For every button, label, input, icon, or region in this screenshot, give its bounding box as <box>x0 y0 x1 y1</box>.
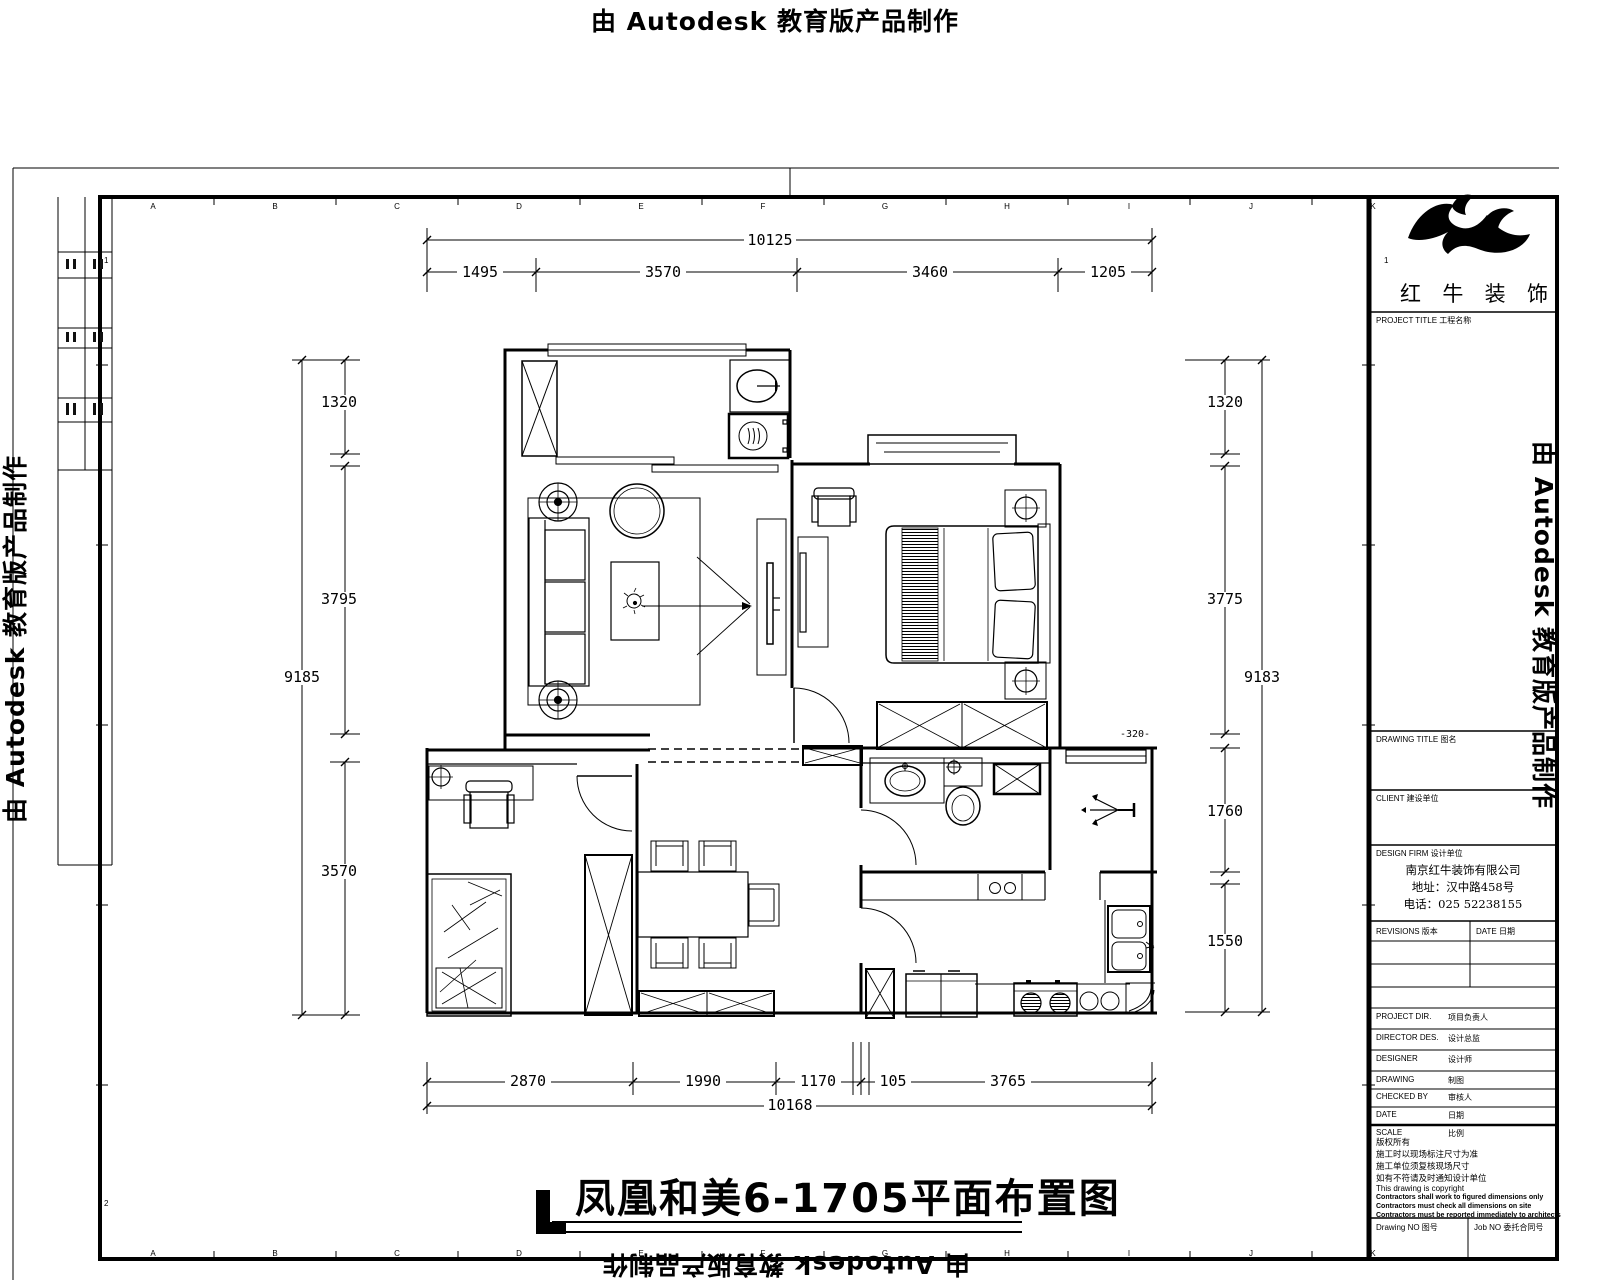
left-reference-strip <box>58 197 112 865</box>
row-project-dir-cn: 项目负责人 <box>1448 1012 1488 1023</box>
svg-text:I: I <box>1128 202 1130 211</box>
svg-text:3765: 3765 <box>990 1072 1026 1090</box>
nightstand-bottom <box>1005 662 1046 699</box>
note-cn-3: 施工单位须复核现场尺寸 <box>1376 1160 1470 1172</box>
svg-text:A: A <box>150 202 156 211</box>
drawing-no-label: Drawing NO 图号 <box>1376 1222 1438 1233</box>
svg-text:H: H <box>1004 1249 1010 1258</box>
revisions-label: REVISIONS 版本 <box>1376 926 1438 937</box>
wash-basin <box>870 758 944 803</box>
row-date-en: DATE <box>1376 1110 1397 1119</box>
row-date-cn: 日期 <box>1448 1110 1464 1121</box>
note-cn-2: 施工时以现场标注尺寸为准 <box>1376 1148 1478 1160</box>
bedroom-chair <box>812 488 856 526</box>
svg-text:F: F <box>761 202 766 211</box>
svg-text:A: A <box>150 1249 156 1258</box>
double-bed <box>886 524 1050 663</box>
balcony <box>522 360 790 458</box>
svg-text:2: 2 <box>104 1199 109 1208</box>
entry-hall <box>1081 794 1134 826</box>
svg-text:105: 105 <box>879 1072 906 1090</box>
svg-text:3795: 3795 <box>321 590 357 608</box>
coffee-table <box>611 562 659 640</box>
desk <box>429 765 533 800</box>
walls <box>427 350 1157 1013</box>
level-mark: -320- <box>1120 729 1150 740</box>
row-drawing-cn: 制图 <box>1448 1075 1464 1086</box>
svg-text:3570: 3570 <box>645 263 681 281</box>
design-firm-label: DESIGN FIRM 设计单位 <box>1376 848 1463 859</box>
svg-text:1990: 1990 <box>685 1072 721 1090</box>
row-checked-en: CHECKED BY <box>1376 1092 1428 1101</box>
watermark-left: 由 Autodesk 教育版产品制作 <box>0 463 32 823</box>
balcony-cabinet <box>522 361 557 456</box>
svg-text:1495: 1495 <box>462 263 498 281</box>
balcony-basin <box>730 360 790 412</box>
living-room <box>528 483 786 719</box>
row-designer-cn: 设计师 <box>1448 1054 1472 1065</box>
svg-text:3570: 3570 <box>321 862 357 880</box>
svg-text:K: K <box>1370 202 1376 211</box>
svg-text:2870: 2870 <box>510 1072 546 1090</box>
row-checked-cn: 审核人 <box>1448 1092 1472 1103</box>
svg-text:E: E <box>638 202 643 211</box>
watermark-top: 由 Autodesk 教育版产品制作 <box>591 2 959 38</box>
nightstand-top <box>1005 490 1046 527</box>
tv-unit <box>757 519 786 675</box>
washing-machine <box>729 414 788 458</box>
company-logo <box>1408 194 1530 254</box>
svg-text:1320: 1320 <box>1207 393 1243 411</box>
firm-address: 地址：汉中路458号 <box>1373 879 1553 895</box>
firm-phone: 电话：025 52238155 <box>1373 896 1553 912</box>
job-no-label: Job NO 委托合同号 <box>1474 1222 1543 1233</box>
svg-text:J: J <box>1249 1249 1253 1258</box>
svg-text:J: J <box>1249 202 1253 211</box>
plan-title: 凤凰和美6-1705平面布置图 <box>575 1166 1121 1224</box>
svg-text:I: I <box>1128 1249 1130 1258</box>
svg-text:B: B <box>272 1249 277 1258</box>
svg-text:C: C <box>394 202 400 211</box>
svg-text:1320: 1320 <box>321 393 357 411</box>
note-en-bold-3: Contractors must be reported immediately… <box>1376 1212 1561 1219</box>
round-table <box>610 484 664 538</box>
dining-chairs <box>651 841 779 968</box>
svg-text:B: B <box>272 202 277 211</box>
bedroom-dresser <box>798 537 828 647</box>
wall-inner-lines <box>427 763 1100 900</box>
svg-text:D: D <box>516 1249 522 1258</box>
firm-name: 南京红牛装饰有限公司 <box>1373 862 1553 878</box>
dimensions: 10125 1495 3570 3460 1205 2870 1990 1170… <box>279 228 1285 1114</box>
master-bedroom <box>798 488 1050 749</box>
drawing-frame: A B C D E F G H I J K A B C D E F G H I … <box>96 197 1557 1259</box>
svg-text:G: G <box>882 202 888 211</box>
drawing-title-label: DRAWING TITLE 图名 <box>1376 734 1456 745</box>
svg-text:K: K <box>1370 1249 1376 1258</box>
toilet <box>944 758 982 825</box>
row-scale-cn: 比例 <box>1448 1128 1464 1139</box>
windows <box>548 344 1146 763</box>
dim-top-overall: 10125 <box>747 231 792 249</box>
wardrobe-master <box>877 702 1047 749</box>
cad-sheet: { "watermarks": { "top": "由 Autodesk 教育版… <box>0 0 1600 1280</box>
cad-canvas: A B C D E F G H I J K A B C D E F G H I … <box>0 0 1600 1280</box>
fridge <box>906 971 977 1017</box>
note-en-bold-2: Contractors must check all dimensions on… <box>1376 1203 1531 1210</box>
svg-text:1760: 1760 <box>1207 802 1243 820</box>
shower-symbol <box>1081 794 1134 826</box>
rug <box>528 498 700 705</box>
note-en-bold-1: Contractors shall work to figured dimens… <box>1376 1194 1543 1201</box>
svg-text:3460: 3460 <box>912 263 948 281</box>
speaker-bottom <box>539 681 577 719</box>
row-director-en: DIRECTOR DES. <box>1376 1033 1439 1042</box>
speaker-top <box>539 483 577 521</box>
cooktop <box>1014 980 1077 1016</box>
row-project-dir-en: PROJECT DIR. <box>1376 1012 1431 1021</box>
row-designer-en: DESIGNER <box>1376 1054 1418 1063</box>
row-director-cn: 设计总监 <box>1448 1033 1480 1044</box>
grid-letters-top: A B C D E F G H I J K <box>150 202 1376 211</box>
dim-bottom-overall: 10168 <box>767 1096 812 1114</box>
svg-text:C: C <box>394 1249 400 1258</box>
project-title-label: PROJECT TITLE 工程名称 <box>1376 315 1471 326</box>
note-en-thin: This drawing is copyright <box>1376 1184 1464 1193</box>
dining-area <box>638 841 779 1016</box>
door-master-bedroom <box>794 688 849 743</box>
tall-cabinet <box>866 969 894 1018</box>
svg-text:1550: 1550 <box>1207 932 1243 950</box>
note-cn-1: 版权所有 <box>1376 1136 1410 1148</box>
dim-right <box>1185 356 1270 1016</box>
grid-row-numbers: 1 1 2 <box>104 256 1389 1208</box>
svg-text:1170: 1170 <box>800 1072 836 1090</box>
company-name: 红牛装饰 <box>1400 278 1548 308</box>
door-second-bedroom <box>577 776 632 831</box>
plan-title-underline-2 <box>552 1231 1022 1233</box>
dim-left <box>292 356 360 1019</box>
single-bed <box>427 874 511 1016</box>
second-bedroom <box>427 765 632 1016</box>
dim-right-overall: 9183 <box>1244 668 1280 686</box>
dim-left-overall: 9185 <box>284 668 320 686</box>
vent-box <box>994 764 1040 794</box>
watermark-bottom: 由 Autodesk 教育版产品制作 <box>610 1248 970 1284</box>
bay-window <box>868 435 1016 464</box>
double-sink <box>1108 906 1154 972</box>
client-label: CLIENT 建设单位 <box>1376 793 1439 804</box>
floor-plan <box>427 344 1157 1018</box>
dining-table <box>638 872 748 937</box>
svg-text:1: 1 <box>1384 256 1389 265</box>
svg-text:D: D <box>516 202 522 211</box>
bathroom <box>870 758 1040 825</box>
desk-chair <box>464 781 514 828</box>
row-drawing-en: DRAWING <box>1376 1075 1414 1084</box>
date-col-label: DATE 日期 <box>1476 926 1515 937</box>
doors <box>577 688 916 963</box>
sofa <box>529 518 589 686</box>
dashed-beam <box>648 749 803 762</box>
door-kitchen <box>861 908 916 963</box>
note-cn-4: 如有不符请及时通知设计单位 <box>1376 1172 1487 1184</box>
svg-text:H: H <box>1004 202 1010 211</box>
wardrobe-second <box>585 855 632 1015</box>
kitchen <box>861 874 1155 1018</box>
door-bathroom <box>861 810 916 865</box>
svg-text:3775: 3775 <box>1207 590 1243 608</box>
watermark-right: 由 Autodesk 教育版产品制作 <box>1527 441 1563 801</box>
svg-text:1: 1 <box>104 256 109 265</box>
svg-text:1205: 1205 <box>1090 263 1126 281</box>
